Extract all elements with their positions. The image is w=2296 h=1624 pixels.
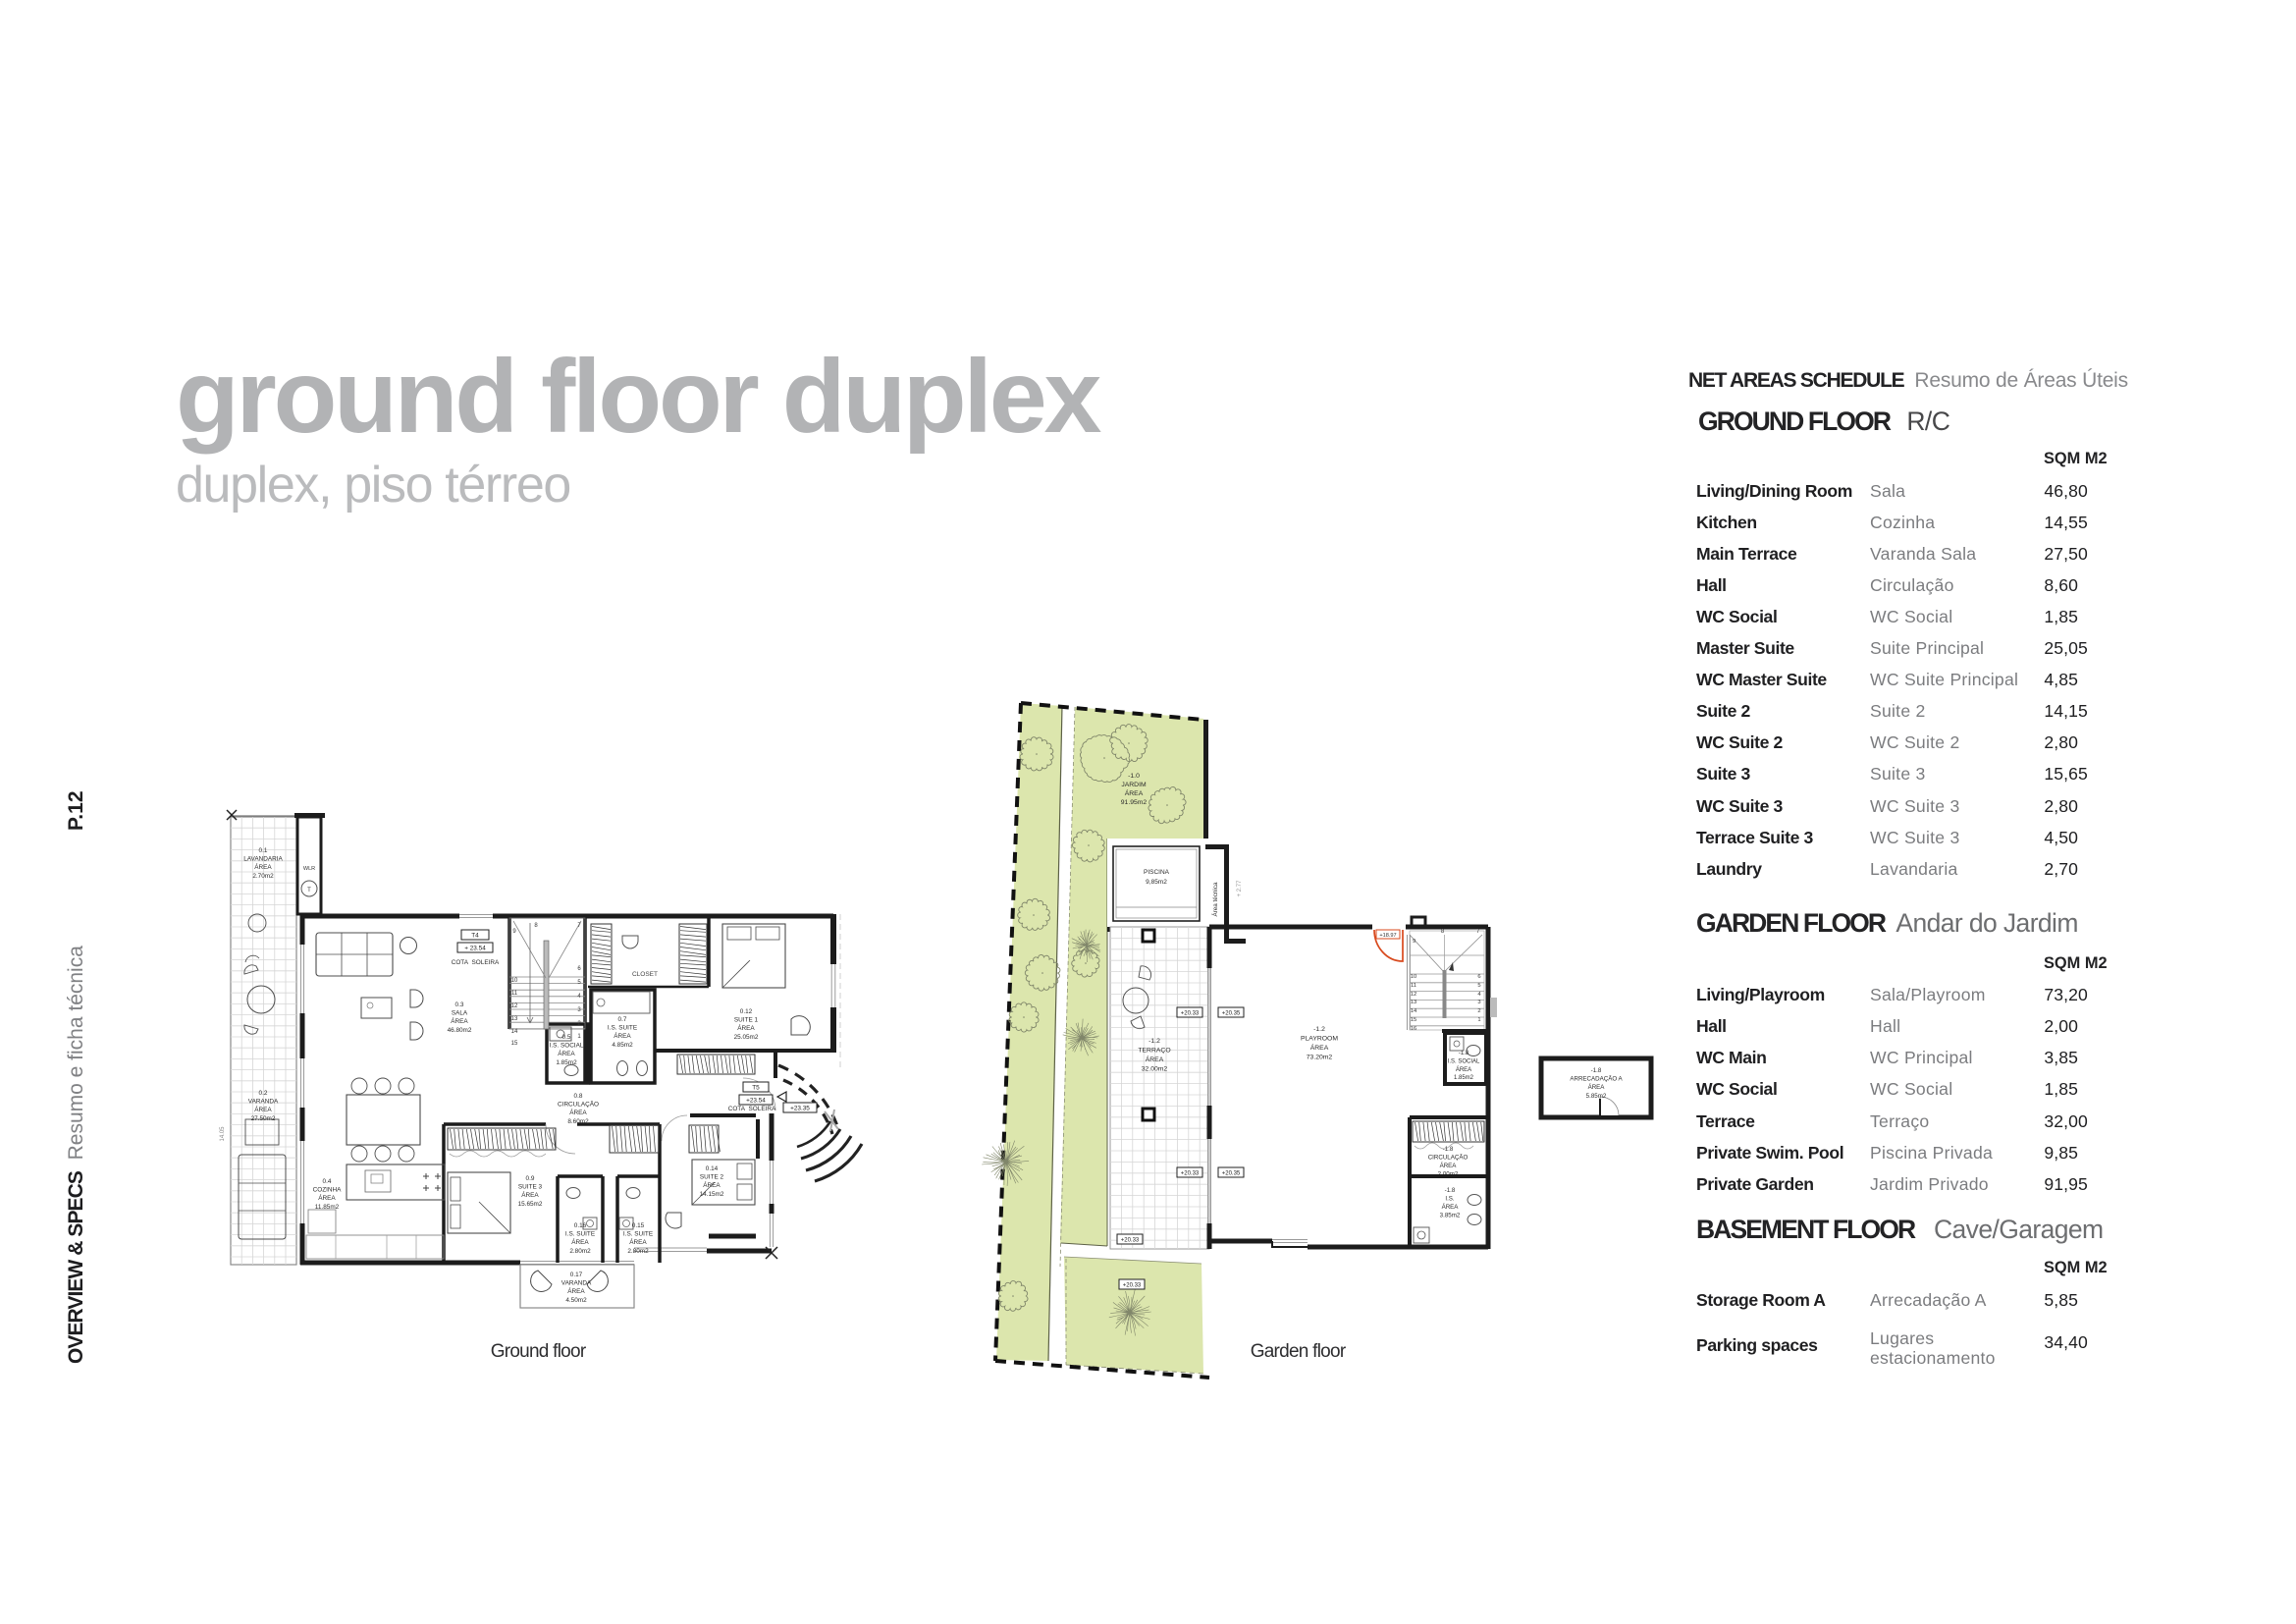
- svg-text:2.80m2: 2.80m2: [627, 1248, 649, 1255]
- svg-text:ÁREA: ÁREA: [1442, 1204, 1460, 1211]
- svg-text:T4: T4: [471, 932, 479, 939]
- svg-text:2: 2: [1477, 1008, 1480, 1014]
- svg-text:6: 6: [577, 966, 581, 972]
- svg-text:I.S. SUITE: I.S. SUITE: [623, 1231, 653, 1238]
- svg-text:73.20m2: 73.20m2: [1307, 1055, 1333, 1061]
- svg-text:+23.54: +23.54: [746, 1097, 766, 1104]
- svg-text:7: 7: [577, 923, 581, 929]
- svg-text:9: 9: [512, 929, 516, 935]
- svg-text:0.8: 0.8: [574, 1093, 583, 1100]
- svg-text:+ 2.77: + 2.77: [1237, 880, 1243, 897]
- svg-text:VARANDA: VARANDA: [561, 1280, 592, 1287]
- svg-text:SUITE 3: SUITE 3: [518, 1184, 543, 1191]
- svg-text:32.00m2: 32.00m2: [1142, 1066, 1168, 1073]
- svg-text:3: 3: [577, 1007, 581, 1013]
- svg-text:4.50m2: 4.50m2: [565, 1297, 587, 1304]
- svg-text:ÁREA: ÁREA: [569, 1108, 587, 1116]
- svg-text:11: 11: [511, 991, 518, 997]
- svg-text:+18.97: +18.97: [1379, 933, 1396, 939]
- svg-text:10: 10: [1411, 974, 1416, 980]
- svg-text:1: 1: [577, 1034, 581, 1040]
- svg-text:ÁREA: ÁREA: [1456, 1066, 1471, 1073]
- svg-text:-1.8: -1.8: [1459, 1051, 1469, 1056]
- svg-text:2.70m2: 2.70m2: [252, 873, 274, 880]
- svg-text:ÁREA: ÁREA: [521, 1190, 539, 1199]
- svg-text:ÁREA: ÁREA: [571, 1237, 589, 1246]
- svg-text:0.16: 0.16: [574, 1222, 587, 1229]
- svg-text:+20.35: +20.35: [1222, 1170, 1241, 1176]
- svg-text:3.85m2: 3.85m2: [1440, 1213, 1461, 1219]
- svg-text:9,85m2: 9,85m2: [1146, 879, 1167, 886]
- svg-text:WLR: WLR: [303, 866, 315, 872]
- svg-text:14.15m2: 14.15m2: [700, 1191, 724, 1198]
- svg-text:COZINHA: COZINHA: [313, 1187, 342, 1194]
- svg-text:25.05m2: 25.05m2: [734, 1034, 759, 1041]
- svg-text:0.14: 0.14: [706, 1165, 719, 1172]
- svg-text:COTA SOLEIRA: COTA SOLEIRA: [728, 1106, 776, 1112]
- svg-text:3: 3: [1477, 1000, 1480, 1005]
- svg-text:9: 9: [1413, 939, 1415, 945]
- svg-text:1.85m2: 1.85m2: [1454, 1075, 1474, 1081]
- svg-text:SUITE 2: SUITE 2: [700, 1174, 724, 1181]
- svg-text:14: 14: [511, 1029, 518, 1035]
- svg-text:ÁREA: ÁREA: [737, 1023, 755, 1032]
- svg-text:+20.33: +20.33: [1181, 1010, 1200, 1016]
- svg-text:+23.35: +23.35: [790, 1105, 810, 1111]
- svg-text:12: 12: [511, 1003, 518, 1009]
- svg-text:ÁREA: ÁREA: [1588, 1084, 1606, 1091]
- svg-text:15: 15: [1411, 1017, 1416, 1023]
- svg-text:+20.33: +20.33: [1123, 1282, 1142, 1288]
- svg-text:+ 23.54: + 23.54: [464, 945, 486, 951]
- svg-text:46.80m2: 46.80m2: [448, 1027, 472, 1034]
- svg-text:27.50m2: 27.50m2: [251, 1115, 276, 1122]
- svg-text:6: 6: [1477, 974, 1480, 980]
- svg-text:T: T: [307, 888, 311, 893]
- svg-text:14.05: 14.05: [220, 1126, 226, 1142]
- svg-text:13: 13: [1411, 1000, 1416, 1005]
- svg-text:JARDIM: JARDIM: [1121, 782, 1147, 788]
- svg-text:8.60m2: 8.60m2: [567, 1118, 589, 1125]
- svg-text:0.7: 0.7: [618, 1016, 627, 1023]
- svg-text:CLOSET: CLOSET: [632, 971, 658, 978]
- svg-text:ÁREA: ÁREA: [614, 1031, 631, 1040]
- svg-text:ÁREA: ÁREA: [558, 1049, 575, 1057]
- svg-text:+20.35: +20.35: [1222, 1010, 1241, 1016]
- svg-text:5: 5: [1477, 983, 1480, 989]
- svg-text:ÁREA: ÁREA: [451, 1016, 468, 1025]
- svg-text:-1.0: -1.0: [1128, 773, 1140, 780]
- svg-text:ÁREA: ÁREA: [703, 1180, 721, 1189]
- svg-text:VARANDA: VARANDA: [248, 1099, 279, 1106]
- svg-text:15.65m2: 15.65m2: [518, 1201, 543, 1208]
- svg-text:8: 8: [534, 923, 538, 929]
- svg-text:I.S. SOCIAL: I.S. SOCIAL: [550, 1043, 584, 1050]
- svg-text:4.85m2: 4.85m2: [612, 1042, 633, 1049]
- svg-text:I.S. SUITE: I.S. SUITE: [608, 1025, 637, 1032]
- svg-text:0.17: 0.17: [570, 1272, 583, 1278]
- svg-text:ÁREA: ÁREA: [254, 1105, 272, 1113]
- svg-text:-1.8: -1.8: [1445, 1187, 1456, 1194]
- svg-text:+20.33: +20.33: [1181, 1170, 1200, 1176]
- svg-text:I.S.: I.S.: [1445, 1196, 1455, 1203]
- svg-text:ÁREA: ÁREA: [1146, 1055, 1164, 1063]
- svg-text:PISCINA: PISCINA: [1144, 869, 1170, 876]
- svg-text:-1.2: -1.2: [1148, 1038, 1160, 1045]
- svg-text:2.80m2: 2.80m2: [569, 1248, 591, 1255]
- svg-text:13: 13: [511, 1016, 518, 1022]
- svg-text:I.S. SOCIAL: I.S. SOCIAL: [1448, 1058, 1480, 1064]
- svg-text:ÁREA: ÁREA: [1440, 1163, 1458, 1169]
- svg-text:0.4: 0.4: [323, 1178, 332, 1185]
- svg-text:16: 16: [1411, 1026, 1416, 1032]
- svg-text:T5: T5: [752, 1084, 760, 1091]
- svg-text:-1.8: -1.8: [1591, 1067, 1602, 1074]
- svg-text:0.12: 0.12: [740, 1008, 753, 1015]
- svg-text:11.85m2: 11.85m2: [315, 1204, 340, 1211]
- svg-text:8: 8: [1441, 929, 1444, 935]
- svg-text:4: 4: [1477, 992, 1481, 998]
- svg-text:91.95m2: 91.95m2: [1121, 799, 1148, 806]
- svg-text:0.1: 0.1: [259, 847, 268, 854]
- svg-text:ÁREA: ÁREA: [1125, 788, 1144, 797]
- svg-text:ÁREA: ÁREA: [567, 1286, 585, 1295]
- svg-text:ÁREA: ÁREA: [318, 1193, 336, 1202]
- svg-text:TERRAÇO: TERRAÇO: [1138, 1048, 1170, 1055]
- svg-text:CIRCULAÇÃO: CIRCULAÇÃO: [558, 1100, 599, 1109]
- svg-text:COTA SOLEIRA: COTA SOLEIRA: [452, 959, 500, 966]
- svg-text:0.2: 0.2: [259, 1090, 268, 1097]
- svg-text:1.85m2: 1.85m2: [556, 1059, 577, 1066]
- svg-text:Área técnica: Área técnica: [1210, 882, 1219, 916]
- svg-text:0.15: 0.15: [632, 1222, 645, 1229]
- svg-text:-1.2: -1.2: [1313, 1026, 1325, 1033]
- svg-text:14: 14: [1411, 1008, 1417, 1014]
- svg-text:ARRECADAÇÃO A: ARRECADAÇÃO A: [1570, 1076, 1623, 1083]
- svg-text:7: 7: [1476, 929, 1479, 935]
- svg-text:1: 1: [1477, 1017, 1480, 1023]
- svg-text:ÁREA: ÁREA: [629, 1237, 647, 1246]
- svg-text:CIRCULAÇÃO: CIRCULAÇÃO: [1428, 1155, 1468, 1162]
- svg-text:I.S. SUITE: I.S. SUITE: [565, 1231, 595, 1238]
- svg-text:+20.33: +20.33: [1121, 1237, 1140, 1243]
- svg-text:5: 5: [577, 980, 581, 986]
- svg-text:PLAYROOM: PLAYROOM: [1301, 1036, 1338, 1043]
- svg-text:SUITE 1: SUITE 1: [734, 1017, 759, 1024]
- svg-text:-1.8: -1.8: [1443, 1146, 1454, 1153]
- svg-text:0.9: 0.9: [526, 1175, 535, 1182]
- svg-text:10: 10: [511, 978, 518, 984]
- svg-text:LAVANDARIA: LAVANDARIA: [243, 856, 283, 863]
- svg-text:15: 15: [511, 1041, 518, 1047]
- svg-text:SALA: SALA: [452, 1010, 468, 1017]
- svg-text:5.85m2: 5.85m2: [1586, 1093, 1607, 1100]
- svg-text:ÁREA: ÁREA: [254, 862, 272, 871]
- svg-text:12: 12: [1411, 992, 1416, 998]
- svg-text:ÁREA: ÁREA: [1310, 1043, 1329, 1052]
- svg-text:0.3: 0.3: [455, 1001, 464, 1008]
- svg-text:11: 11: [1411, 983, 1416, 989]
- svg-text:0.5: 0.5: [562, 1034, 571, 1041]
